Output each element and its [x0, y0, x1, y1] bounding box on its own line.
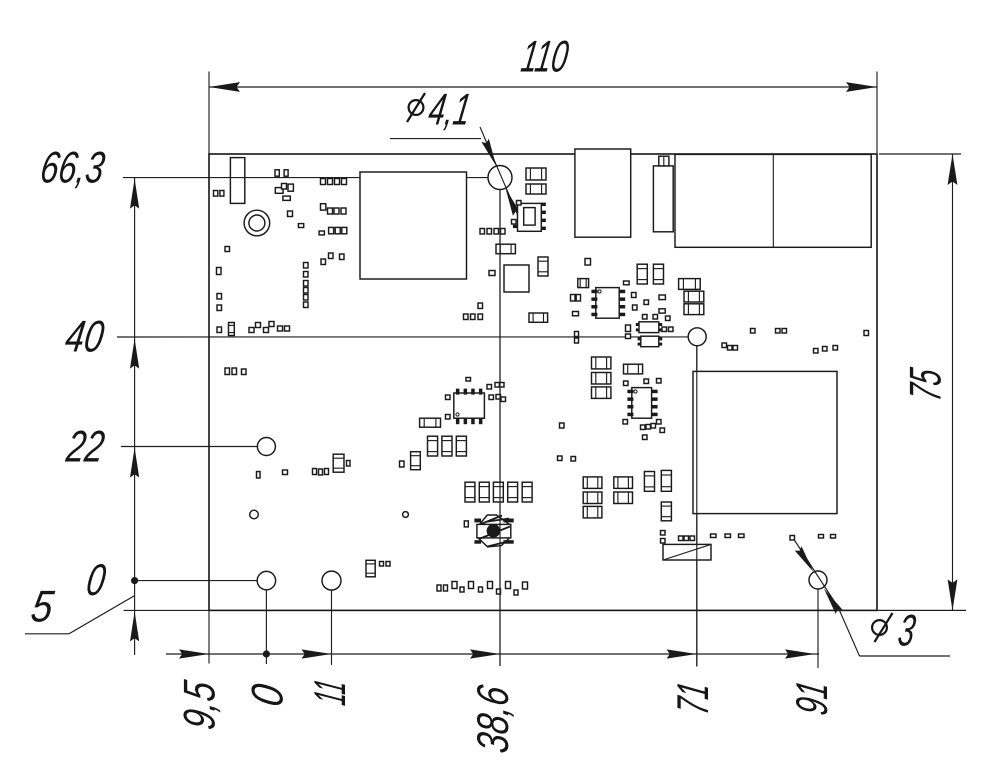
svg-text:38,6: 38,6 — [468, 682, 518, 756]
svg-text:110: 110 — [518, 32, 572, 82]
svg-text:66,3: 66,3 — [37, 143, 108, 193]
svg-text:71: 71 — [668, 679, 718, 718]
svg-text:40: 40 — [62, 312, 107, 362]
svg-text:75: 75 — [901, 365, 951, 404]
svg-text:11: 11 — [305, 676, 355, 708]
svg-text:9,5: 9,5 — [175, 678, 225, 733]
svg-text:5: 5 — [28, 582, 57, 632]
svg-text:3: 3 — [895, 606, 919, 656]
svg-text:22: 22 — [63, 422, 108, 472]
svg-text:0: 0 — [83, 555, 109, 605]
svg-text:91: 91 — [787, 678, 837, 718]
svg-text:0: 0 — [243, 681, 293, 710]
svg-text:4,1: 4,1 — [425, 85, 474, 135]
